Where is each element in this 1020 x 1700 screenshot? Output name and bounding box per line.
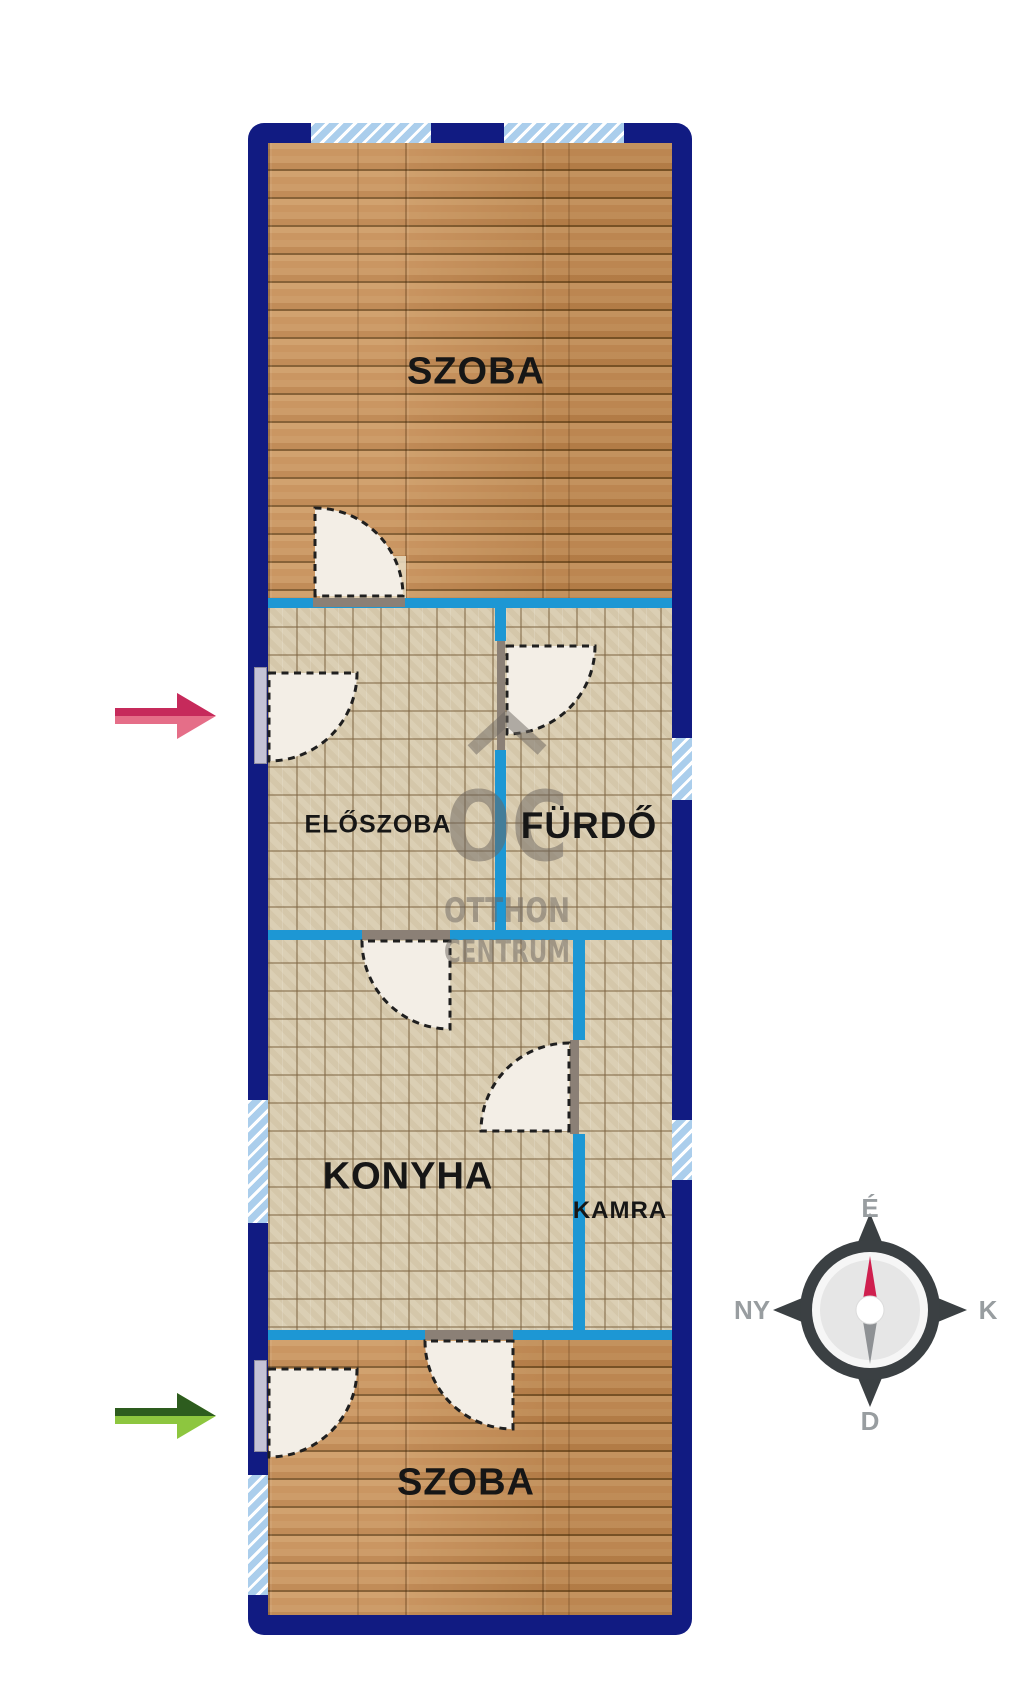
room-label-szoba-top: SZOBA — [407, 351, 545, 394]
window-pantry — [672, 1120, 692, 1180]
window-top-right — [504, 123, 624, 143]
door-swing-pantry — [479, 1041, 571, 1133]
door-opening-szoba-top — [313, 598, 405, 607]
room-label-furdo: FÜRDŐ — [521, 805, 658, 847]
door-opening-pantry — [570, 1040, 579, 1134]
floorplan-canvas: OC OTTHON CENTRUM SZOBA ELŐSZOBA FÜRDŐ K… — [0, 0, 1020, 1700]
compass-label-north: É — [861, 1193, 878, 1223]
compass-label-west: NY — [734, 1295, 770, 1325]
entry-door-frame-top — [254, 667, 267, 764]
room-label-konyha: KONYHA — [323, 1156, 494, 1199]
window-bath — [672, 738, 692, 800]
window-kitchen — [248, 1100, 268, 1223]
entrance-arrow-green-icon — [113, 1387, 219, 1443]
room-label-kamra: KAMRA — [573, 1197, 667, 1225]
door-swing-szoba-bottom — [423, 1339, 515, 1431]
compass-rose-icon: É D NY K — [730, 1185, 1020, 1435]
room-label-szoba-bottom: SZOBA — [397, 1462, 535, 1505]
watermark-name-line2: CENTRUM — [444, 934, 570, 970]
entrance-arrow-red-icon — [113, 687, 219, 743]
entry-door-frame-bottom — [254, 1360, 267, 1452]
compass-label-east: K — [979, 1295, 998, 1325]
watermark-name-line1: OTTHON — [444, 891, 570, 931]
window-szoba-bottom — [248, 1475, 268, 1595]
compass-label-south: D — [861, 1406, 880, 1435]
room-label-eloszoba: ELŐSZOBA — [305, 811, 452, 840]
watermark-roof-icon — [472, 718, 542, 750]
window-top-left — [311, 123, 431, 143]
door-swing-szoba-top — [313, 506, 405, 598]
door-swing-entry-bottom — [267, 1367, 359, 1459]
wall-hall-bath-upper — [495, 608, 506, 641]
wall-kitchen-pantry-lower — [573, 1134, 585, 1330]
door-swing-entry-top — [267, 671, 359, 763]
